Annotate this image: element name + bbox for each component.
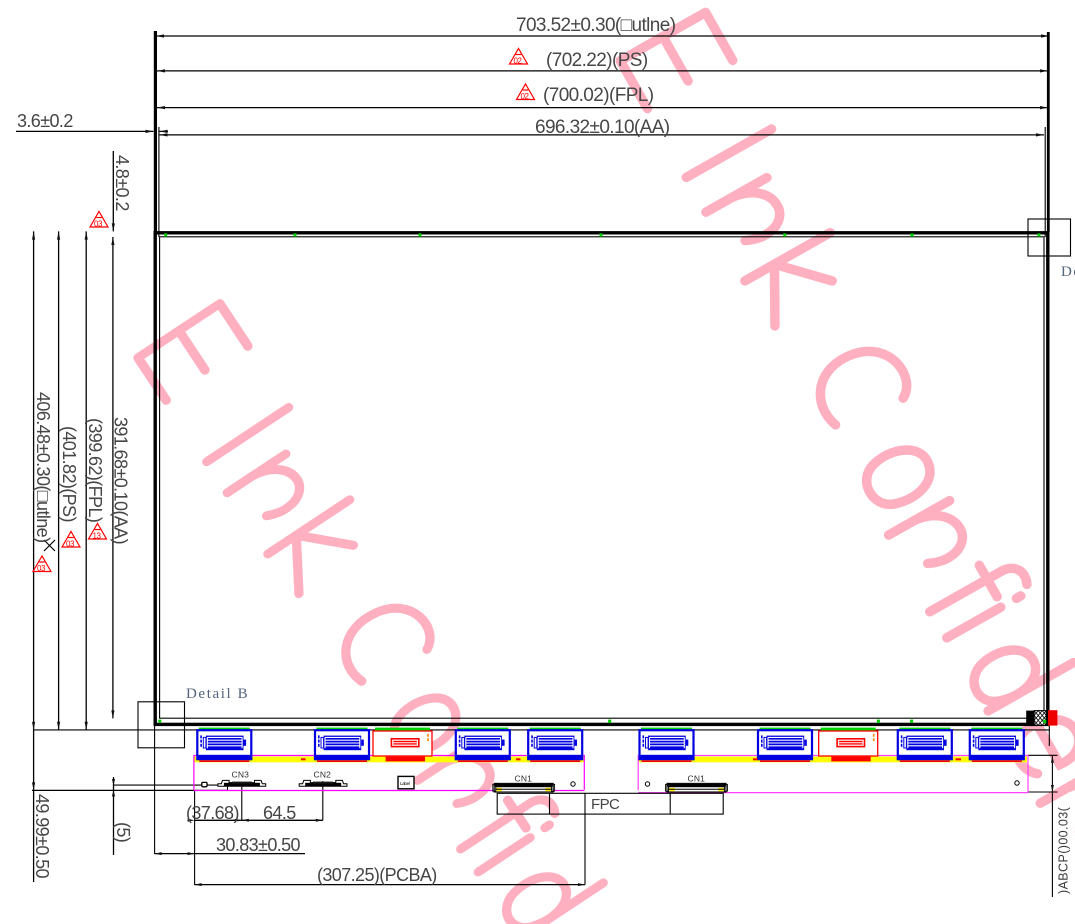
svg-text:(702.22)(PS): (702.22)(PS) <box>546 50 648 71</box>
svg-text:406.48±0.30(□utlne): 406.48±0.30(□utlne) <box>33 392 53 542</box>
svg-text:4.8±0.2: 4.8±0.2 <box>112 155 132 211</box>
svg-text:(399.62)(FPL): (399.62)(FPL) <box>85 418 105 522</box>
svg-text:03: 03 <box>37 564 46 573</box>
svg-text:(37.68): (37.68) <box>186 803 239 823</box>
svg-text:02: 02 <box>514 57 523 66</box>
svg-text:13: 13 <box>93 532 102 541</box>
svg-text:Detail A: Detail A <box>1061 264 1075 280</box>
svg-text:(5): (5) <box>113 822 133 842</box>
svg-text:Label: Label <box>400 781 410 786</box>
svg-text:Detail B: Detail B <box>186 686 249 702</box>
svg-text:(401.82)(PS): (401.82)(PS) <box>59 426 79 522</box>
svg-text:696.32±0.10(AA): 696.32±0.10(AA) <box>535 117 670 138</box>
svg-text:CN3: CN3 <box>232 770 250 780</box>
svg-text:03: 03 <box>94 220 103 229</box>
svg-text:49.99±0.50: 49.99±0.50 <box>32 794 52 879</box>
svg-text:CN1: CN1 <box>515 774 533 784</box>
svg-text:(307.25)(PCBA): (307.25)(PCBA) <box>317 865 437 885</box>
svg-text:(700.02)(FPL): (700.02)(FPL) <box>543 85 654 106</box>
svg-text:)ABCP()00.03(: )ABCP()00.03( <box>1057 806 1071 894</box>
svg-text:64.5: 64.5 <box>263 803 296 823</box>
svg-text:02: 02 <box>521 92 530 101</box>
svg-text:FPC: FPC <box>591 796 620 813</box>
svg-text:30.83±0.50: 30.83±0.50 <box>216 835 301 855</box>
svg-text:703.52±0.30(□utlne): 703.52±0.30(□utlne) <box>516 15 676 36</box>
svg-text:CN2: CN2 <box>314 770 332 780</box>
svg-text:391.68±0.10(AA): 391.68±0.10(AA) <box>111 417 131 544</box>
svg-text:03: 03 <box>66 540 75 549</box>
svg-text:3.6±0.2: 3.6±0.2 <box>17 111 73 131</box>
svg-text:CN1: CN1 <box>688 774 706 784</box>
